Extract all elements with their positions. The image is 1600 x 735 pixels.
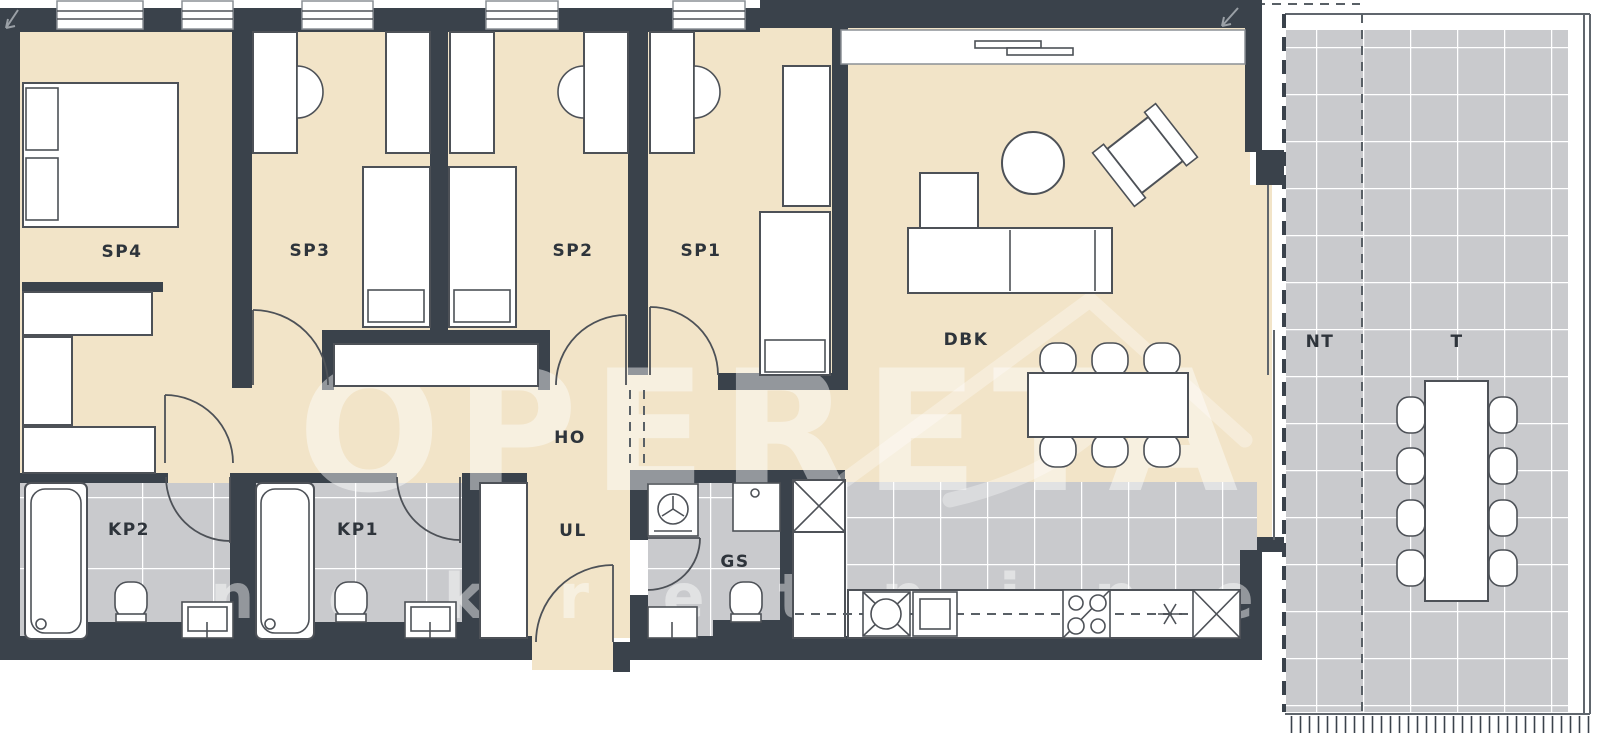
window-sp3 bbox=[302, 1, 373, 29]
room-label-gs: GS bbox=[720, 552, 749, 572]
terrace-chair bbox=[1397, 550, 1425, 586]
window-sp4-b bbox=[182, 1, 233, 29]
closet-wall bbox=[22, 282, 163, 292]
coffee-table bbox=[1002, 132, 1064, 194]
room-label-nt: NT bbox=[1306, 332, 1335, 352]
window-sp4-a bbox=[57, 1, 143, 29]
terrace-chair bbox=[1489, 550, 1517, 586]
floor-plan-page: OPERETA n e k r e t n i n e bbox=[0, 0, 1600, 735]
tall-cabinet bbox=[793, 532, 845, 638]
wall-bottom-entry-stub bbox=[613, 642, 630, 672]
sink-icon bbox=[182, 602, 233, 638]
wall-right-corner-block bbox=[1256, 150, 1284, 185]
wall-right-lower-block bbox=[1257, 537, 1284, 552]
stove-icon bbox=[1063, 590, 1110, 638]
kitchen-sink-icon bbox=[863, 592, 910, 636]
room-label-t: T bbox=[1450, 332, 1463, 352]
wardrobe bbox=[23, 337, 72, 425]
terrace-chair bbox=[1489, 397, 1517, 433]
wall-left bbox=[0, 8, 20, 660]
desk bbox=[584, 32, 628, 153]
bathtub-icon bbox=[256, 483, 314, 639]
wall-right-upper bbox=[1245, 0, 1262, 152]
terrace-railing bbox=[1285, 716, 1590, 733]
dining-chair bbox=[1144, 433, 1180, 467]
pillow bbox=[26, 88, 58, 150]
toilet-icon bbox=[115, 582, 147, 622]
bathtub-icon bbox=[25, 483, 87, 639]
sliding-door-icon bbox=[1007, 48, 1073, 55]
wall-bottom-east bbox=[630, 636, 1262, 660]
wall-top-east bbox=[760, 0, 1262, 28]
gs-basin-icon bbox=[648, 607, 697, 638]
wall-sp3-sp2 bbox=[430, 28, 448, 340]
gs-sink-icon bbox=[733, 483, 780, 531]
entry-closet bbox=[480, 483, 527, 638]
entry-threshold bbox=[532, 636, 613, 670]
room-label-ul: UL bbox=[559, 521, 587, 541]
hall-closet bbox=[334, 344, 538, 386]
room-label-kp2: KP2 bbox=[108, 520, 150, 540]
sink-icon bbox=[405, 602, 456, 638]
room-label-sp1: SP1 bbox=[680, 241, 721, 261]
room-label-ho: HO bbox=[554, 428, 586, 448]
desk bbox=[650, 32, 694, 153]
wardrobe bbox=[450, 32, 494, 153]
terrace-chair bbox=[1397, 397, 1425, 433]
dining-chair bbox=[1144, 343, 1180, 377]
dining-set bbox=[1028, 343, 1188, 467]
sliding-door-icon bbox=[975, 41, 1041, 48]
dining-chair bbox=[1092, 343, 1128, 377]
dining-chair bbox=[1092, 433, 1128, 467]
wall-kp2-top bbox=[20, 473, 168, 483]
wardrobe bbox=[386, 32, 430, 153]
washing-machine-icon bbox=[648, 484, 698, 536]
oven-icon bbox=[913, 592, 957, 636]
pillow bbox=[765, 340, 825, 372]
room-label-kp1: KP1 bbox=[337, 520, 379, 540]
room-label-sp2: SP2 bbox=[552, 241, 593, 261]
window-sp2 bbox=[486, 1, 558, 29]
room-label-dbk: DBK bbox=[944, 330, 989, 350]
desk bbox=[253, 32, 297, 153]
terrace-chair bbox=[1397, 448, 1425, 484]
dbk-sliding-glass-wall bbox=[841, 30, 1245, 64]
terrace-tiles bbox=[1286, 30, 1568, 712]
wall-sp4-sp3 bbox=[232, 30, 252, 388]
pillow bbox=[26, 158, 58, 220]
terrace-chair bbox=[1397, 500, 1425, 536]
room-label-sp3: SP3 bbox=[289, 241, 330, 261]
toilet-icon bbox=[335, 582, 367, 622]
window-sp1 bbox=[673, 1, 745, 29]
wall-sp2-sp1 bbox=[628, 28, 648, 375]
wardrobe bbox=[23, 292, 152, 335]
gs-toilet-icon bbox=[730, 582, 762, 622]
wardrobe bbox=[783, 66, 830, 206]
pillow bbox=[368, 290, 424, 322]
terrace-table bbox=[1425, 381, 1488, 601]
apartment-floor-plan: OPERETA n e k r e t n i n e bbox=[0, 0, 1600, 735]
dining-chair bbox=[1040, 433, 1076, 467]
dining-chair bbox=[1040, 343, 1076, 377]
wardrobe bbox=[23, 427, 155, 473]
terrace-chair bbox=[1489, 500, 1517, 536]
fridge-icon bbox=[1193, 590, 1240, 638]
dining-table bbox=[1028, 373, 1188, 437]
room-label-sp4: SP4 bbox=[101, 242, 142, 262]
terrace-chair bbox=[1489, 448, 1517, 484]
pillow bbox=[454, 290, 510, 322]
